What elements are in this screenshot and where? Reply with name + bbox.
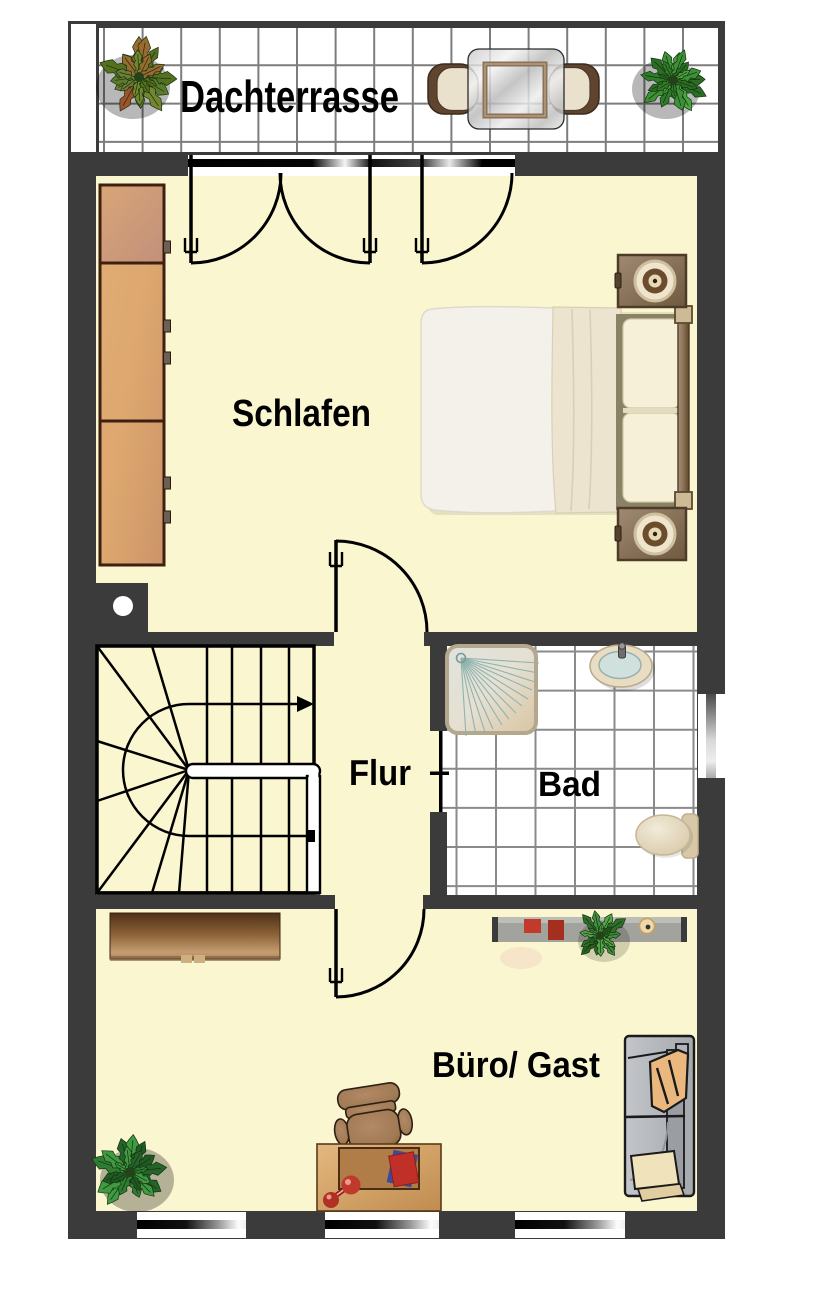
svg-text:Büro/ Gast: Büro/ Gast: [432, 1044, 600, 1085]
svg-text:Schlafen: Schlafen: [232, 393, 371, 435]
svg-text:Bad: Bad: [538, 765, 601, 804]
svg-text:Flur: Flur: [349, 752, 411, 793]
svg-text:Dachterrasse: Dachterrasse: [180, 71, 399, 122]
